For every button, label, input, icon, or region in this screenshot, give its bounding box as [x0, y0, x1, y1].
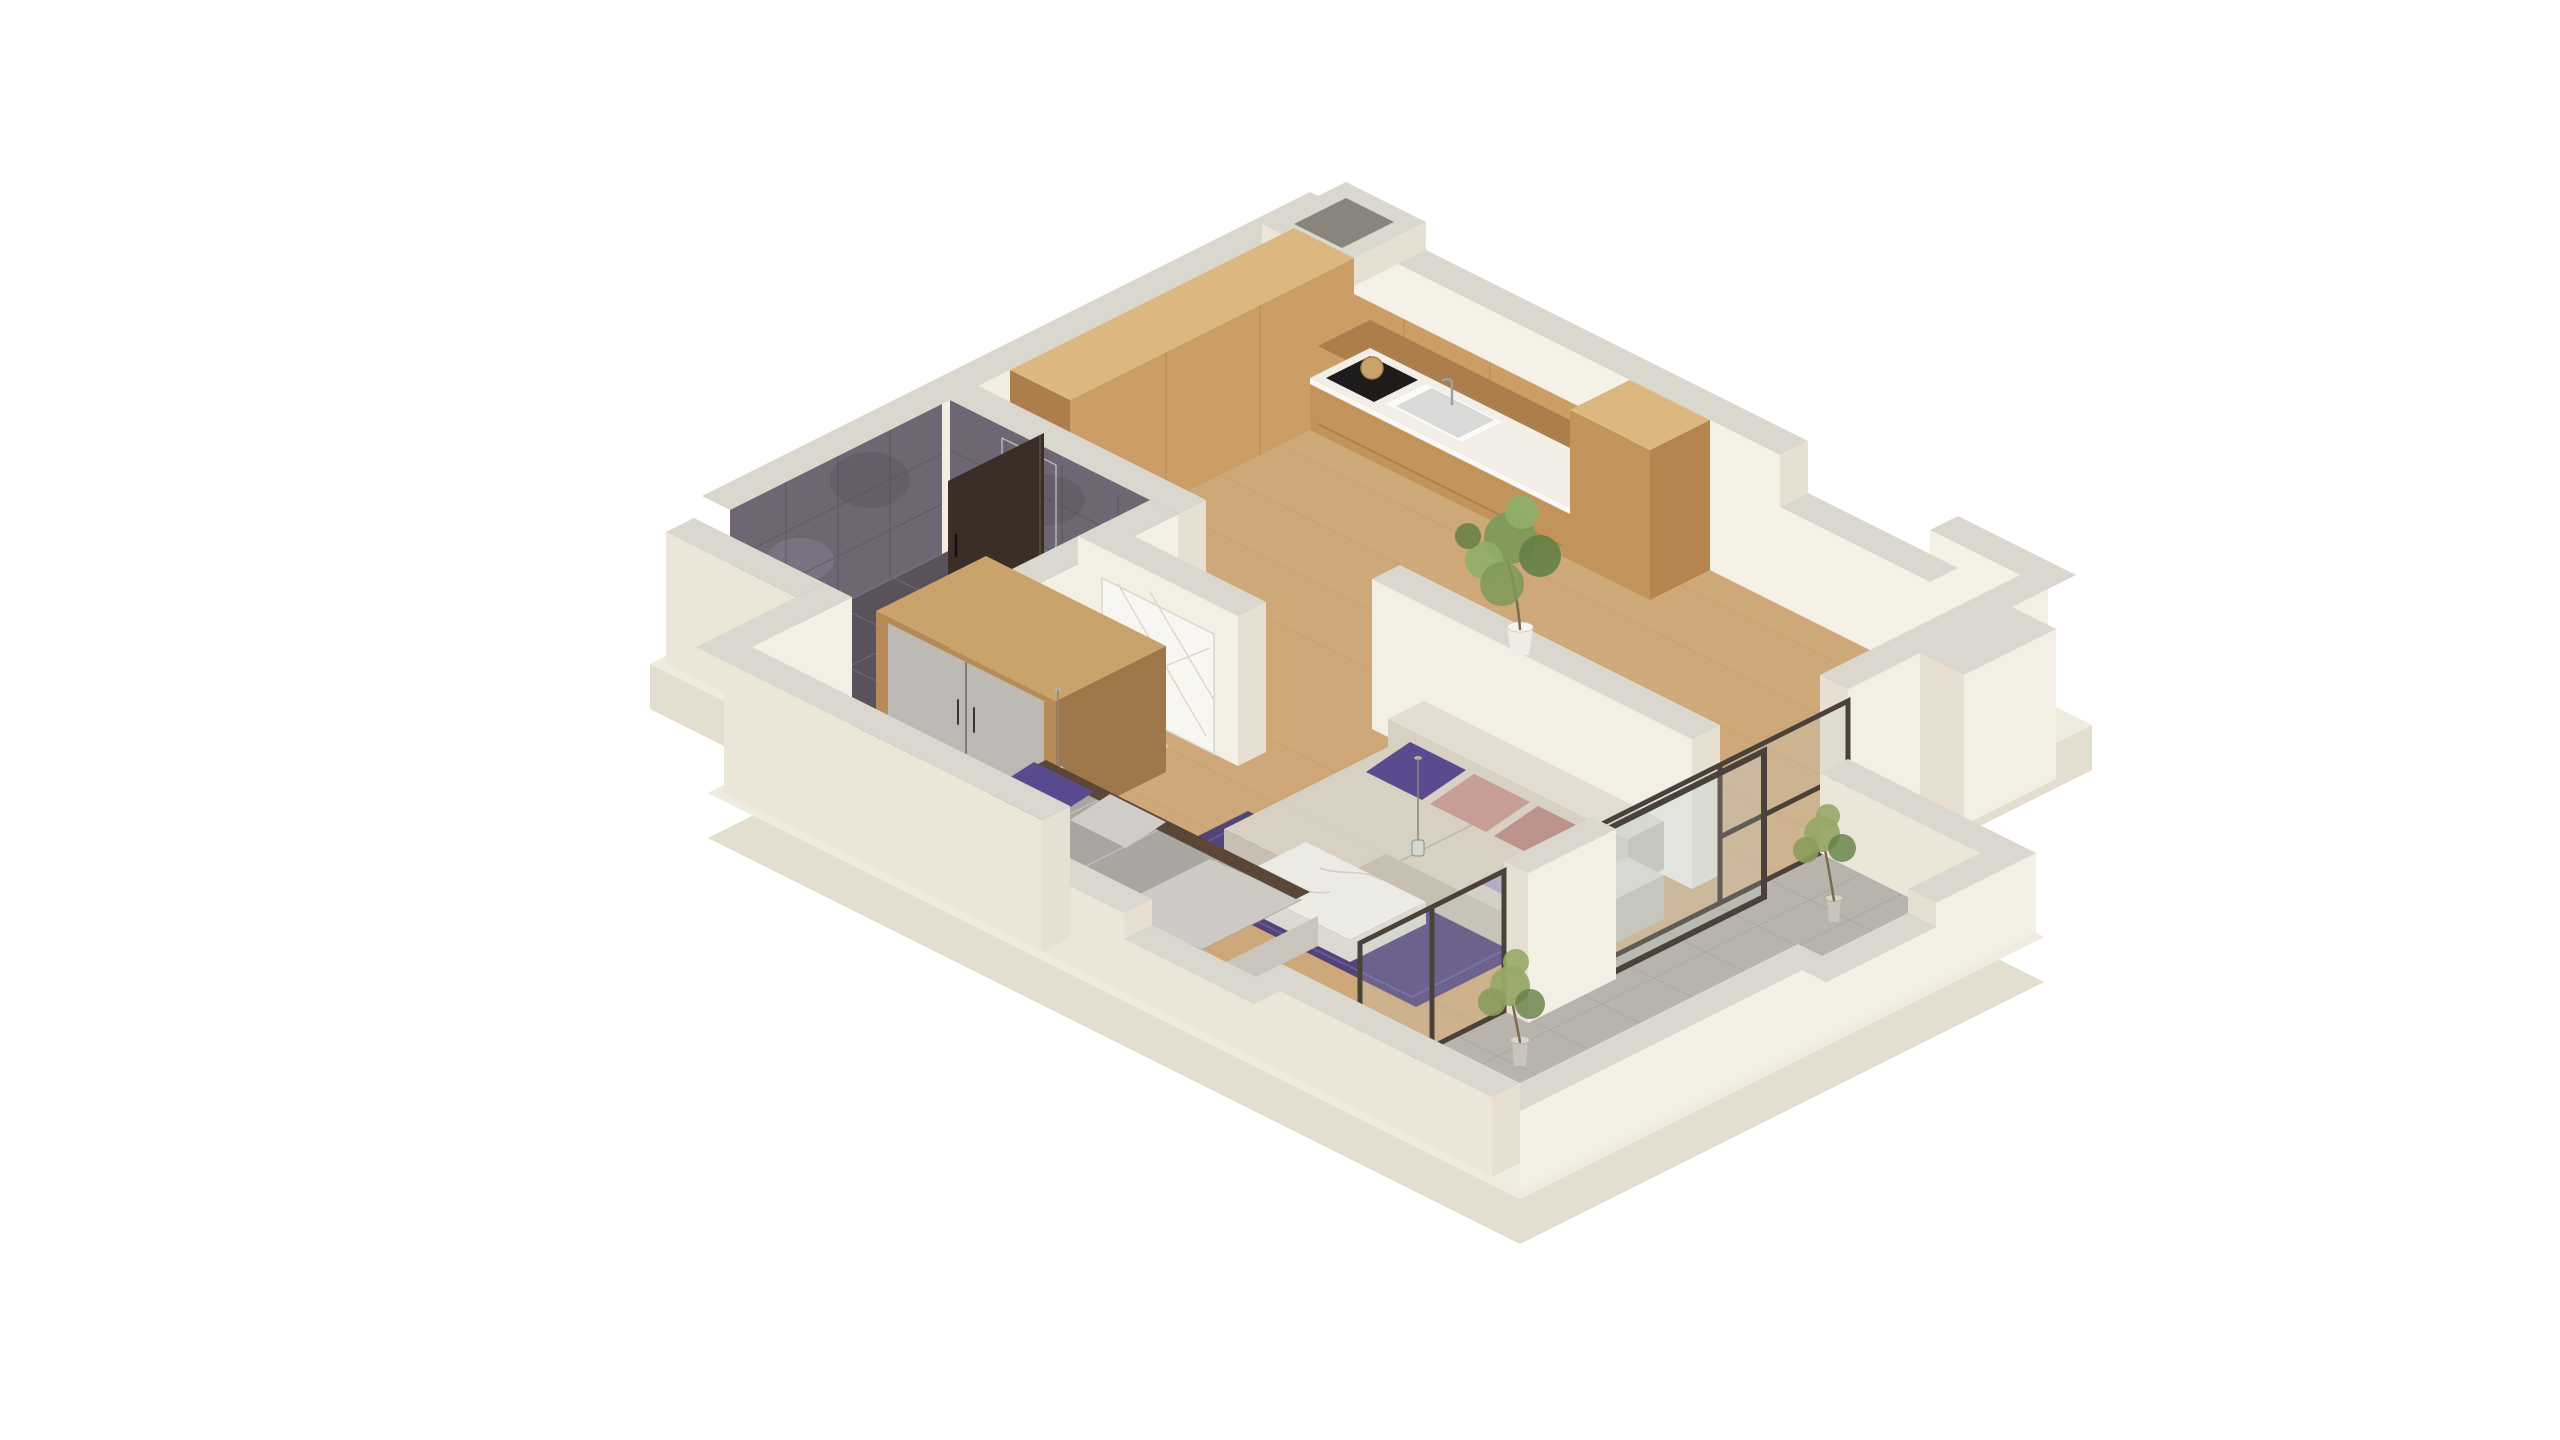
kitchen-cutting-board: [1361, 357, 1383, 379]
parapet-sw-end-se: [1492, 1083, 1520, 1177]
entry-wall-end-face: [1238, 602, 1266, 766]
screenshot-root: [0, 0, 2560, 1440]
bedroom-sw-wall-end: [1042, 806, 1070, 952]
kitchen-column-face-se: [1650, 420, 1710, 600]
floor-plan-render: [0, 0, 2560, 1440]
